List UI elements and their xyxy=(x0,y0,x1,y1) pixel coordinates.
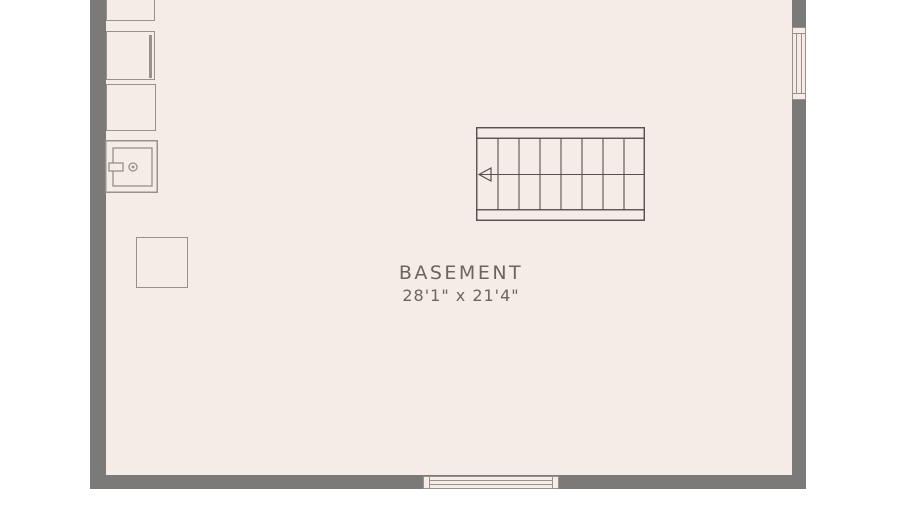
appliance-door-line xyxy=(149,35,153,78)
stairs-svg xyxy=(476,127,645,221)
stair-bottom-stringer xyxy=(477,210,645,221)
storage-unit-top xyxy=(106,0,155,21)
room-label: BASEMENT xyxy=(331,262,591,284)
utility-appliance xyxy=(105,140,158,193)
left-wall xyxy=(90,0,106,489)
stair-top-stringer xyxy=(477,128,645,139)
storage-unit-middle xyxy=(106,84,156,131)
right-wall-window xyxy=(792,27,806,100)
basement-floor xyxy=(106,0,792,475)
bottom-wall-window xyxy=(423,476,559,489)
storage-unit-upper xyxy=(106,31,155,80)
room-dimensions: 28'1" x 21'4" xyxy=(331,286,591,305)
support-post xyxy=(136,237,188,288)
